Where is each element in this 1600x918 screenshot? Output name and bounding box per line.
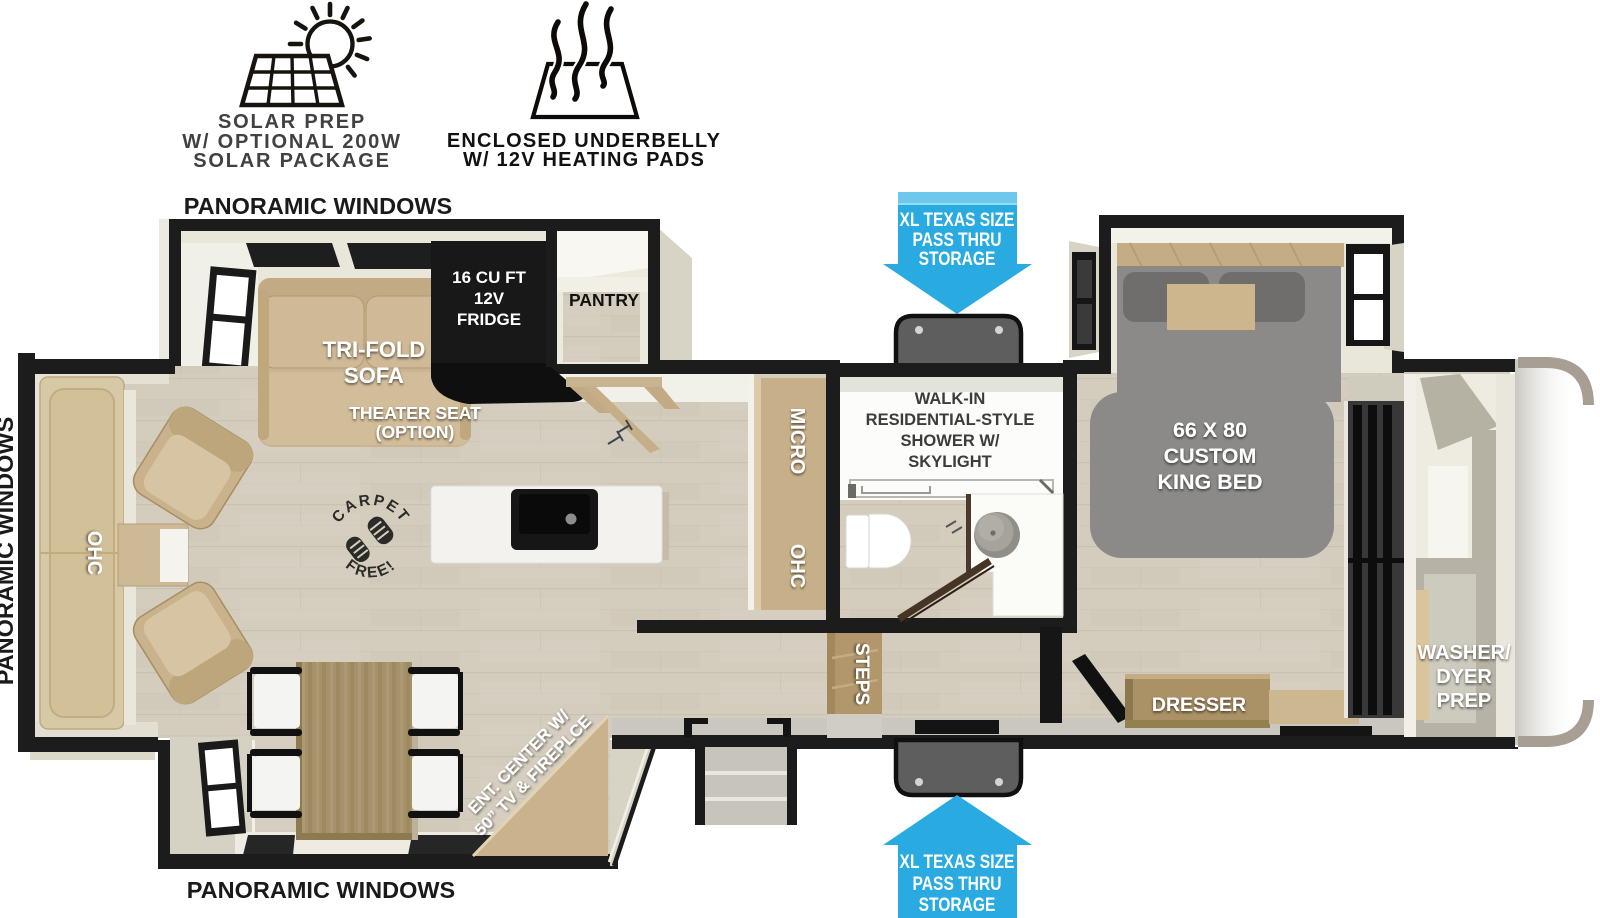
svg-text:KING BED: KING BED (1157, 470, 1262, 494)
svg-text:STEPS: STEPS (851, 643, 872, 705)
svg-text:SHOWER W/: SHOWER W/ (901, 432, 1000, 450)
svg-text:12V: 12V (474, 289, 505, 308)
svg-text:RESIDENTIAL-STYLE: RESIDENTIAL-STYLE (866, 411, 1035, 429)
svg-text:16 CU FT: 16 CU FT (452, 268, 526, 287)
svg-text:SOLAR PREP: SOLAR PREP (218, 111, 366, 133)
svg-text:SOLAR PACKAGE: SOLAR PACKAGE (193, 150, 390, 172)
svg-text:STORAGE: STORAGE (919, 893, 996, 915)
svg-text:SKYLIGHT: SKYLIGHT (908, 453, 991, 471)
svg-text:PASS THRU: PASS THRU (913, 872, 1002, 894)
svg-text:WASHER/: WASHER/ (1417, 642, 1511, 664)
svg-text:DRESSER: DRESSER (1152, 694, 1246, 716)
svg-text:PANTRY: PANTRY (569, 290, 639, 310)
svg-text:THEATER SEAT: THEATER SEAT (349, 403, 481, 423)
svg-text:W/ 12V HEATING PADS: W/ 12V HEATING PADS (463, 149, 705, 171)
svg-text:PANORAMIC WINDOWS: PANORAMIC WINDOWS (184, 193, 452, 219)
svg-text:66 X 80: 66 X 80 (1173, 418, 1247, 442)
svg-text:XL TEXAS SIZE: XL TEXAS SIZE (900, 208, 1015, 230)
svg-text:MICRO: MICRO (786, 408, 808, 475)
svg-text:TRI-FOLD: TRI-FOLD (323, 337, 426, 362)
svg-text:CUSTOM: CUSTOM (1164, 444, 1257, 468)
svg-text:OHC: OHC (786, 544, 808, 588)
svg-text:XL TEXAS SIZE: XL TEXAS SIZE (900, 850, 1015, 872)
svg-text:PREP: PREP (1437, 690, 1491, 712)
svg-text:SOFA: SOFA (344, 363, 404, 388)
svg-text:FRIDGE: FRIDGE (457, 310, 521, 329)
svg-text:OHC: OHC (83, 531, 105, 575)
svg-text:DYER: DYER (1436, 666, 1492, 688)
svg-text:(OPTION): (OPTION) (376, 422, 455, 442)
svg-text:PANORAMIC WINDOWS: PANORAMIC WINDOWS (0, 417, 18, 685)
svg-text:PANORAMIC WINDOWS: PANORAMIC WINDOWS (187, 877, 455, 903)
svg-text:STORAGE: STORAGE (919, 247, 996, 269)
svg-text:WALK-IN: WALK-IN (915, 390, 986, 408)
